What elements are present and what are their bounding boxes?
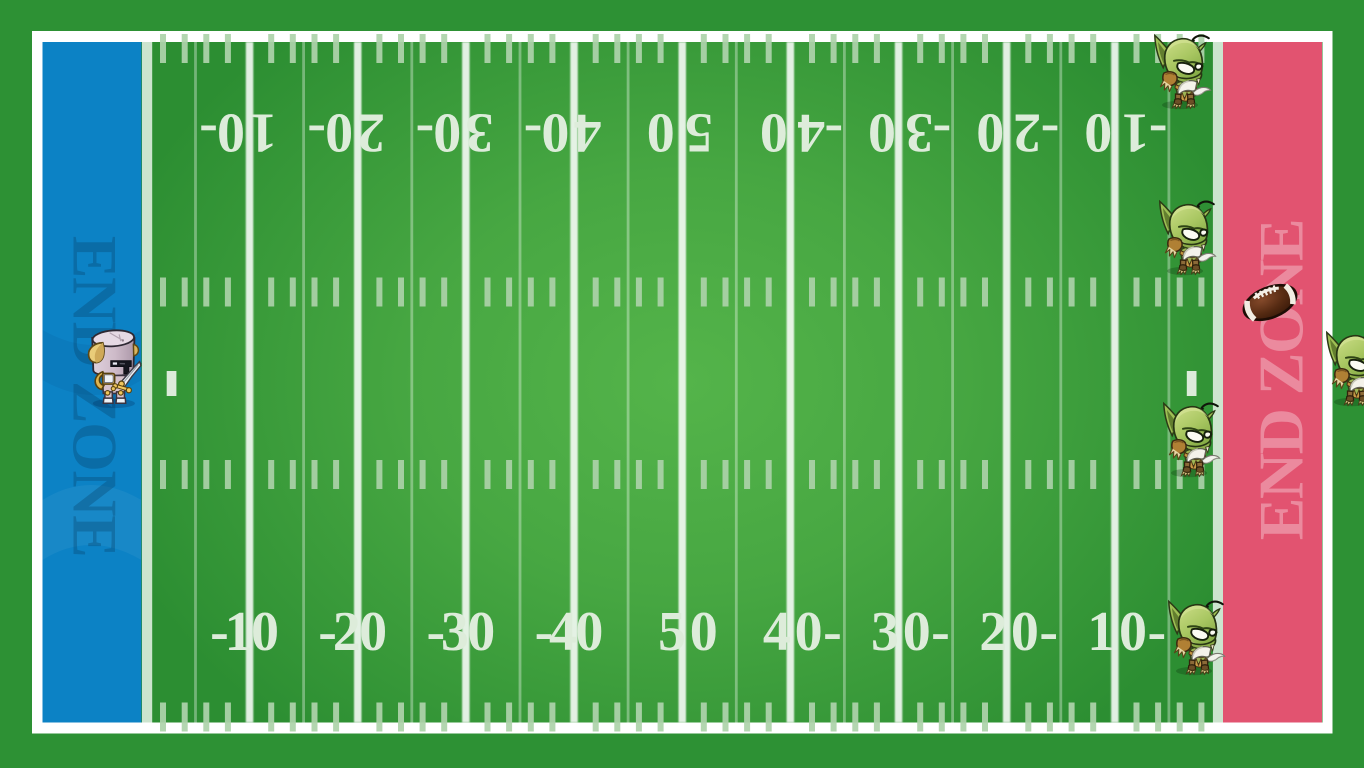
svg-text:1: 1 [1087,601,1115,663]
svg-text:0: 0 [760,102,788,164]
svg-text:0: 0 [868,102,896,164]
svg-text:0: 0 [647,102,675,164]
svg-text:-: - [1041,102,1060,164]
svg-text:0: 0 [575,601,603,663]
svg-text:2: 2 [357,102,385,164]
svg-text:0: 0 [359,601,387,663]
svg-text:2: 2 [1013,102,1041,164]
svg-text:0: 0 [903,601,931,663]
svg-text:0: 0 [325,102,353,164]
svg-text:0: 0 [467,601,495,663]
svg-text:3: 3 [871,601,899,663]
svg-text:4: 4 [797,102,825,164]
svg-text:-: - [199,102,218,164]
svg-text:0: 0 [1084,102,1112,164]
svg-text:END ZONE: END ZONE [1246,220,1317,541]
svg-text:0: 0 [795,601,823,663]
svg-text:1: 1 [1121,102,1149,164]
svg-text:-: - [416,102,435,164]
svg-text:0: 0 [1011,601,1039,663]
svg-text:0: 0 [217,102,245,164]
svg-text:-: - [307,102,326,164]
svg-text:1: 1 [225,601,253,663]
svg-text:5: 5 [658,601,686,663]
svg-text:-: - [931,601,950,663]
svg-text:-: - [1039,601,1058,663]
svg-text:2: 2 [979,601,1007,663]
svg-text:-: - [524,102,543,164]
svg-text:0: 0 [251,601,279,663]
svg-text:5: 5 [685,102,713,164]
svg-text:1: 1 [249,102,277,164]
svg-text:0: 0 [541,102,569,164]
svg-text:-: - [1149,102,1168,164]
svg-text:0: 0 [1119,601,1147,663]
svg-text:4: 4 [763,601,791,663]
svg-text:3: 3 [465,102,493,164]
svg-text:3: 3 [905,102,933,164]
svg-text:4: 4 [573,102,601,164]
svg-text:4: 4 [549,601,577,663]
svg-text:-: - [1147,601,1166,663]
svg-text:-: - [823,601,842,663]
svg-text:0: 0 [976,102,1004,164]
svg-text:0: 0 [690,601,718,663]
svg-text:0: 0 [433,102,461,164]
svg-text:-: - [933,102,952,164]
svg-text:2: 2 [333,601,361,663]
svg-text:-: - [824,102,843,164]
svg-text:3: 3 [441,601,469,663]
